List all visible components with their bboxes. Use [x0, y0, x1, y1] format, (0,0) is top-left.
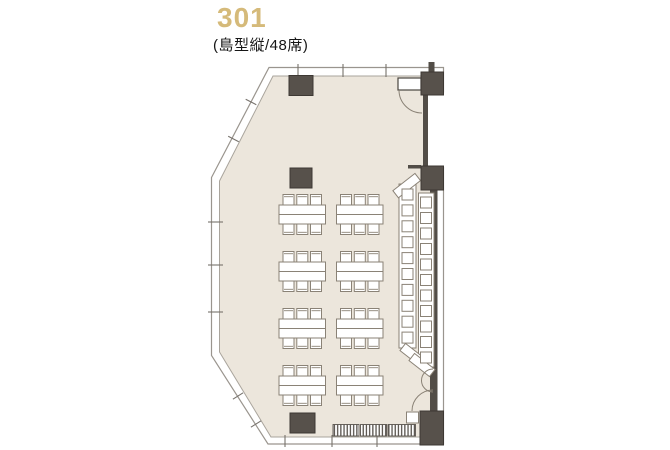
chair: [341, 252, 352, 263]
chair: [297, 309, 308, 320]
chair: [283, 309, 294, 320]
chair: [283, 195, 294, 206]
chair: [297, 366, 308, 377]
chair: [368, 281, 379, 292]
chair: [368, 195, 379, 206]
stacked-chairs-storage: [333, 425, 416, 437]
chair: [311, 309, 322, 320]
chair: [354, 195, 365, 206]
entrance-alcove: [428, 93, 447, 168]
stacked-chair: [421, 290, 432, 301]
chair: [297, 338, 308, 349]
chair: [368, 309, 379, 320]
wall-stub: [429, 62, 435, 73]
table-group: [337, 195, 384, 235]
chair: [341, 338, 352, 349]
chair: [297, 252, 308, 263]
chair: [341, 195, 352, 206]
stacked-chair: [402, 189, 413, 200]
chair: [297, 395, 308, 406]
stacked-chair: [421, 244, 432, 255]
chair: [341, 395, 352, 406]
chair: [354, 338, 365, 349]
chair: [311, 366, 322, 377]
stacked-chair: [402, 253, 413, 264]
chair: [297, 224, 308, 235]
table-group: [279, 252, 326, 292]
stacked-chair: [402, 221, 413, 232]
stacked-chair: [402, 269, 413, 280]
chair: [297, 195, 308, 206]
chair: [297, 281, 308, 292]
chair: [368, 338, 379, 349]
chair: [368, 366, 379, 377]
stacked-chair: [421, 275, 432, 286]
chair: [311, 252, 322, 263]
door-leaf: [398, 78, 421, 90]
chair: [283, 338, 294, 349]
stacked-chairs-row: [388, 425, 416, 437]
chair: [354, 252, 365, 263]
chair: [341, 224, 352, 235]
chair: [354, 309, 365, 320]
chair: [283, 366, 294, 377]
chair: [341, 281, 352, 292]
stacked-chairs-row: [333, 425, 359, 437]
chair: [311, 338, 322, 349]
chair: [341, 366, 352, 377]
pillar: [289, 76, 313, 96]
stacked-chair: [402, 284, 413, 295]
chair: [283, 224, 294, 235]
floorplan-canvas: [0, 0, 670, 450]
side-chair-strips: [393, 173, 435, 376]
chair: [311, 281, 322, 292]
stacked-chair: [421, 352, 432, 363]
chair: [311, 395, 322, 406]
pillar: [420, 411, 444, 445]
chair: [368, 252, 379, 263]
table-group: [279, 195, 326, 235]
stacked-chair: [402, 316, 413, 327]
stacked-chair: [421, 197, 432, 208]
stacked-chair: [402, 332, 413, 343]
table-group: [279, 309, 326, 349]
chair: [368, 395, 379, 406]
pillar: [421, 166, 444, 190]
pillar: [421, 72, 444, 95]
chair: [311, 224, 322, 235]
stacked-chair: [421, 337, 432, 348]
pillar: [290, 413, 315, 433]
table-group: [337, 366, 384, 406]
chair: [354, 366, 365, 377]
table-group: [337, 252, 384, 292]
table-group: [337, 309, 384, 349]
chair: [283, 252, 294, 263]
stacked-chair: [421, 306, 432, 317]
stacked-chair: [402, 237, 413, 248]
stacked-chair: [421, 321, 432, 332]
chair: [283, 395, 294, 406]
chair: [354, 395, 365, 406]
stacked-chair: [421, 213, 432, 224]
chair: [368, 224, 379, 235]
stacked-chairs-row: [361, 425, 387, 437]
entrance-side-wall: [423, 93, 428, 168]
stacked-chair: [402, 205, 413, 216]
chair: [341, 309, 352, 320]
chair: [283, 281, 294, 292]
stacked-chair: [421, 259, 432, 270]
storage-box: [407, 412, 419, 423]
chair: [311, 195, 322, 206]
wall-mark: [408, 165, 421, 169]
pillar: [290, 168, 312, 188]
stacked-chair: [402, 300, 413, 311]
chair: [354, 224, 365, 235]
chair: [354, 281, 365, 292]
stacked-chair: [421, 228, 432, 239]
room-floorplan-page: 301 (島型縦/48席): [0, 0, 670, 450]
table-group: [279, 366, 326, 406]
